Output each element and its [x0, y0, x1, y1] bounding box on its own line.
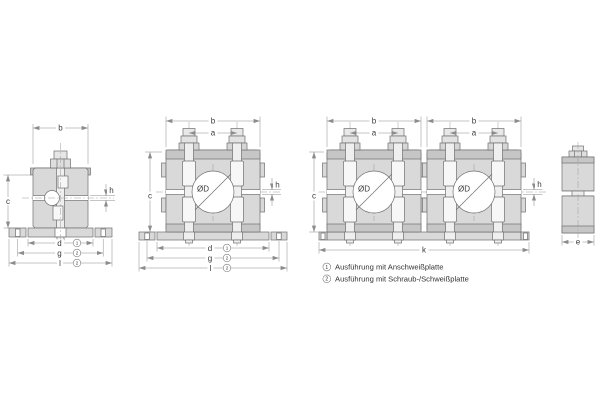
ref-2-number: 2: [226, 256, 229, 261]
legend: 1 Ausführung mit Anschweißplatte 2 Ausfü…: [323, 263, 469, 284]
dim-label-b: b: [211, 117, 216, 126]
view-front-twin-clamp: ØD ØD b b a a: [309, 117, 546, 255]
dim-label-e: e: [576, 238, 581, 247]
view-front-single-clamp: ØD b a c h: [139, 117, 287, 273]
legend-text-2: Ausführung mit Schraub-/Schweißplatte: [335, 274, 469, 283]
dim-label-c: c: [312, 192, 316, 201]
pipe-clamp-drawing: b c h d 1: [0, 0, 600, 400]
ref-1-number: 1: [226, 246, 229, 251]
dim-label-h: h: [537, 180, 541, 189]
dim-label-l: l: [59, 259, 61, 268]
legend-item-1: 1 Ausführung mit Anschweißplatte: [323, 263, 444, 272]
weld-plate: [157, 232, 269, 240]
ref-2-number: 2: [76, 251, 79, 256]
dim-c: c: [4, 175, 31, 228]
legend-item-2: 2 Ausführung mit Schraub-/Schweißplatte: [323, 274, 469, 283]
dim-d: d 1: [28, 239, 93, 248]
dim-label-l: l: [210, 264, 212, 273]
diameter-label: ØD: [458, 185, 470, 194]
diameter-label: ØD: [358, 185, 370, 194]
ref-2-number: 2: [226, 266, 229, 271]
dim-d: d 1: [157, 242, 269, 253]
dim-label-c: c: [6, 197, 10, 206]
clamp-front-view-left: [323, 122, 426, 246]
legend-text-1: Ausführung mit Anschweißplatte: [335, 263, 443, 272]
clamp-front-view: [162, 122, 265, 246]
dim-label-h: h: [275, 181, 279, 190]
dim-label-b: b: [58, 124, 63, 133]
dim-label-b: b: [372, 117, 377, 126]
dim-k: k: [319, 242, 529, 255]
dim-label-d: d: [57, 239, 61, 248]
diameter-label: ØD: [197, 185, 209, 194]
ref-1-number: 1: [76, 241, 79, 246]
ref-1-number: 1: [325, 265, 328, 271]
view-side-twin-clamp: e: [562, 142, 594, 247]
dim-label-a: a: [472, 129, 477, 138]
dim-label-g: g: [208, 254, 212, 263]
twin-base-plate: [327, 232, 521, 240]
clamp-front-view-right: [423, 122, 526, 246]
dim-label-b: b: [472, 117, 477, 126]
dim-label-a: a: [211, 129, 216, 138]
view-side-single-clamp: b c h d 1: [4, 124, 117, 268]
dim-e: e: [562, 235, 594, 247]
ref-2-number: 2: [325, 277, 328, 283]
dim-label-c: c: [148, 192, 152, 201]
dim-label-h: h: [109, 186, 113, 195]
dim-label-g: g: [57, 249, 61, 258]
dim-label-a: a: [372, 129, 377, 138]
dim-label-d: d: [208, 244, 212, 253]
technical-drawing-page: b c h d 1: [0, 0, 600, 400]
ref-2-number: 2: [76, 261, 79, 266]
